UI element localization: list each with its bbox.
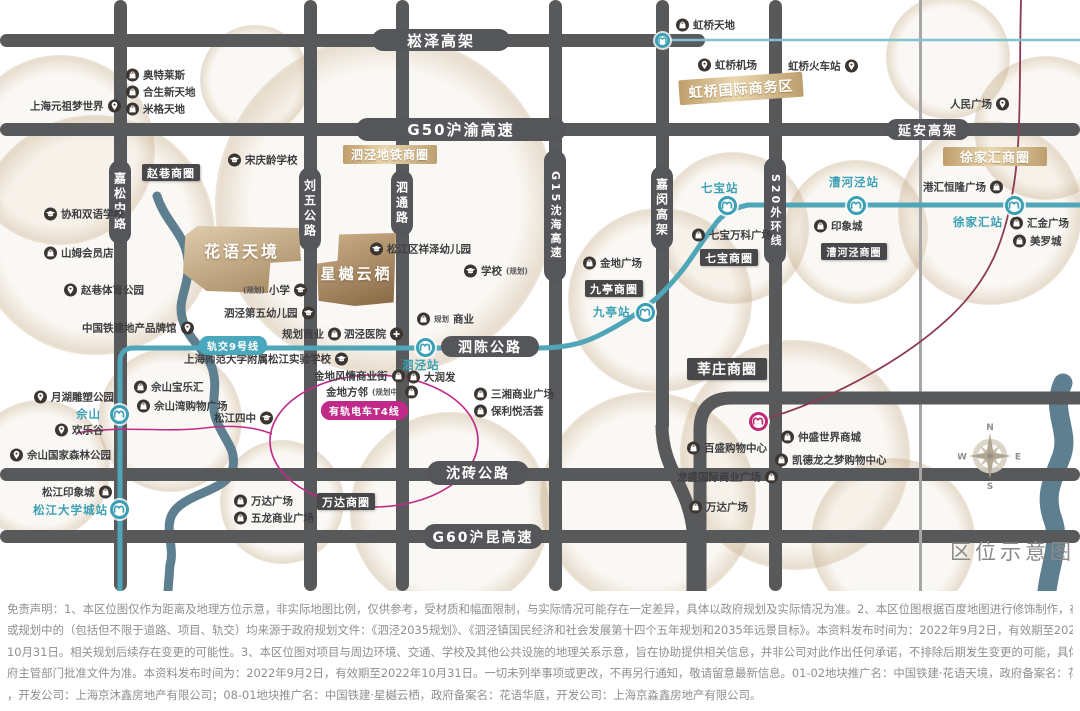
disclaimer-line: 10月31日。相关规划后续存在变更的可能性。3、本区位图对项目与周边环境、交通、… xyxy=(7,642,1073,663)
poi-label: 泗泾医院 xyxy=(344,327,386,342)
poi-label: 规划商业 xyxy=(282,327,324,342)
poi-label: 三湘商业广场 xyxy=(491,387,554,402)
transit-line-label: 有轨电车T4线 xyxy=(321,401,408,420)
metro-station xyxy=(847,196,866,215)
road-label: 延安高架 xyxy=(886,119,970,140)
map-poi: 月湖雕塑公园 xyxy=(34,390,114,405)
compass-rose: N E S W xyxy=(958,422,1022,490)
pin-icon xyxy=(845,60,858,73)
district-badge: 莘庄商圈 xyxy=(687,358,767,380)
poi-label: 印象城 xyxy=(831,219,863,234)
pin-icon xyxy=(108,100,121,113)
poi-label: 赵巷体育公园 xyxy=(81,283,144,298)
poi-label: 百盛购物中心 xyxy=(704,441,767,456)
disclaimer-line: 免责声明：1、本区位图仅作为距离及地理方位示意，非实际地图比例，仅供参考，受材质… xyxy=(7,599,1073,620)
road-label: S20外环线 xyxy=(764,157,786,265)
mall-icon xyxy=(676,19,689,32)
station-label: 徐家汇站 xyxy=(953,214,1003,230)
poi-note: (规划) xyxy=(243,285,265,296)
school-icon xyxy=(335,353,348,366)
map-poi: 三湘商业广场 xyxy=(474,387,554,402)
pin-icon xyxy=(996,98,1009,111)
poi-label: 佘山湾购物广场 xyxy=(154,399,228,414)
mall-icon xyxy=(126,103,139,116)
poi-label: 虹桥机场 xyxy=(715,58,757,73)
poi-label: 虹桥火车站 xyxy=(788,59,841,74)
metro-station xyxy=(655,33,670,48)
map-poi: 泗泾医院 xyxy=(344,327,403,342)
mall-icon xyxy=(328,328,341,341)
poi-label: 凯德龙之梦购物中心 xyxy=(792,453,887,468)
school-icon xyxy=(302,307,315,320)
disclaimer-line: 府主管部门批准文件为准。本资料发布时间为：2022年9月2日，有效期至2022年… xyxy=(7,663,1073,684)
road-label: 崧泽高架 xyxy=(372,29,510,51)
school-icon xyxy=(294,284,307,297)
map-poi: 港汇恒隆广场 xyxy=(923,180,1003,195)
poi-label: 宋庆龄学校 xyxy=(245,153,298,168)
poi-label: 米格天地 xyxy=(143,102,185,117)
station-label: 泗泾站 xyxy=(402,357,440,373)
poi-label: 五龙商业广场 xyxy=(251,511,314,526)
road-label: 沈砖公路 xyxy=(427,461,529,485)
metro-station xyxy=(110,405,129,424)
map-poi: 金地广场 xyxy=(583,256,642,271)
district-badge: 赵巷商圈 xyxy=(142,164,200,181)
poi-label: 小学 xyxy=(269,283,290,298)
poi-label: 中国铁建地产品牌馆 xyxy=(82,321,177,336)
poi-label: 商业 xyxy=(453,312,474,327)
map-poi: 龙盛国际商业广场 xyxy=(677,470,778,485)
school-icon xyxy=(464,265,477,278)
mall-icon xyxy=(765,471,778,484)
poi-label: 虹桥天地 xyxy=(693,18,735,33)
poi-label: 万达广场 xyxy=(251,494,293,509)
poi-label: 仲盛世界商城 xyxy=(798,430,861,445)
map-poi: 山姆会员店 xyxy=(44,246,114,261)
mall-icon xyxy=(134,381,147,394)
mall-icon xyxy=(775,454,788,467)
station-label: 漕河泾站 xyxy=(829,174,879,190)
poi-label: 合生新天地 xyxy=(143,85,196,100)
poi-label: 龙盛国际商业广场 xyxy=(677,470,761,485)
mall-icon xyxy=(1013,235,1026,248)
pin-icon xyxy=(64,284,77,297)
metro-station xyxy=(110,500,129,519)
hosp-icon xyxy=(390,328,403,341)
map-poi: 人民广场 xyxy=(950,97,1009,112)
district-badge: 九亭商圈 xyxy=(585,280,643,297)
disclaimer-text: 免责声明：1、本区位图仅作为距离及地理方位示意，非实际地图比例，仅供参考，受材质… xyxy=(0,593,1080,706)
poi-label: 协和双语学校 xyxy=(61,207,124,222)
map-poi: 虹桥机场 xyxy=(698,58,757,73)
station-label: 九亭站 xyxy=(593,304,631,320)
road-label: G15沈海高速 xyxy=(544,150,566,282)
map-poi: 保利悦活荟 xyxy=(474,404,544,419)
pin-icon xyxy=(181,322,194,335)
compass-s: S xyxy=(987,482,993,490)
map-poi: 百盛购物中心 xyxy=(687,441,767,456)
map-poi: 中国铁建地产品牌馆 xyxy=(82,321,194,336)
map-poi: 规划商业 xyxy=(282,327,341,342)
map-poi: 万达广场 xyxy=(689,500,748,515)
mall-icon xyxy=(126,86,139,99)
mall-icon xyxy=(44,247,57,260)
poi-note: 规划 xyxy=(434,314,449,325)
metro-station xyxy=(749,412,768,431)
mall-icon xyxy=(417,313,430,326)
road-label: 嘉松中路 xyxy=(109,160,131,244)
poi-label: 美罗城 xyxy=(1030,234,1062,249)
road-label: 泗通路 xyxy=(391,170,413,236)
location-map-page: 崧泽高架G50沪渝高速延安高架泗陈公路沈砖公路G60沪昆高速嘉松中路刘五公路泗通… xyxy=(0,0,1080,711)
map-poi: 宋庆龄学校 xyxy=(228,153,298,168)
map-poi: 万达广场 xyxy=(234,494,293,509)
mall-icon xyxy=(126,69,139,82)
mall-icon xyxy=(990,181,1003,194)
mall-icon xyxy=(99,486,112,499)
poi-label: 佘山国家森林公园 xyxy=(27,448,111,463)
map-title: 区位示意图 xyxy=(950,536,1075,566)
district-badge: 泗泾地铁商圈 xyxy=(343,145,437,164)
map-poi: 七宝万科广场 xyxy=(692,228,772,243)
compass-n: N xyxy=(986,423,994,433)
map-poi: 汇金广场 xyxy=(1010,216,1069,231)
pin-icon xyxy=(55,424,68,437)
poi-label: 人民广场 xyxy=(950,97,992,112)
map-poi: 米格天地 xyxy=(126,102,185,117)
map-poi: 协和双语学校 xyxy=(44,207,124,222)
district-badge: 万达商圈 xyxy=(317,493,375,510)
disclaimer-line: ，开发公司：上海京沐鑫房地产有限公司；08-01地块推广名：中国铁建·星樾云栖，… xyxy=(7,685,1073,706)
tram-t4-west xyxy=(77,426,272,434)
mall-icon xyxy=(474,405,487,418)
road-label: G50沪渝高速 xyxy=(356,118,566,141)
map-poi: 佘山国家森林公园 xyxy=(10,448,111,463)
poi-label: 上海元祖梦世界 xyxy=(30,99,104,114)
district-badge: 七宝商圈 xyxy=(700,249,758,266)
district-badge: 徐家汇商圈 xyxy=(943,147,1047,166)
district-badge: 漕河泾商圈 xyxy=(821,243,887,260)
road-label: 刘五公路 xyxy=(299,167,321,251)
mall-icon xyxy=(781,431,794,444)
poi-label: 山姆会员店 xyxy=(61,246,114,261)
map-poi: 虹桥天地 xyxy=(676,18,735,33)
metro-station xyxy=(636,303,655,322)
map-poi: 五龙商业广场 xyxy=(234,511,314,526)
map-poi: 凯德龙之梦购物中心 xyxy=(775,453,887,468)
map-poi: (规划)小学 xyxy=(243,283,307,298)
poi-label: 金地方邻 xyxy=(326,385,368,400)
poi-note: (规划) xyxy=(506,266,528,277)
mall-icon xyxy=(692,229,705,242)
map-poi: 赵巷体育公园 xyxy=(64,283,144,298)
map-poi: 佘山宝乐汇 xyxy=(134,380,204,395)
poi-label: 月湖雕塑公园 xyxy=(51,390,114,405)
road-label: 泗陈公路 xyxy=(441,336,539,357)
mall-icon xyxy=(583,257,596,270)
map-poi: 印象城 xyxy=(814,219,863,234)
poi-label: 七宝万科广场 xyxy=(709,228,772,243)
poi-label: 欢乐谷 xyxy=(72,423,104,438)
poi-label: 佘山宝乐汇 xyxy=(151,380,204,395)
poi-note: (规划中) xyxy=(372,387,401,398)
map-poi: 金地风情商业街 xyxy=(314,369,405,384)
mall-icon xyxy=(234,512,247,525)
mall-icon xyxy=(814,220,827,233)
poi-label: 金地广场 xyxy=(600,256,642,271)
map-poi: 泗泾第五幼儿园 xyxy=(224,306,315,321)
station-label: 佘山 xyxy=(76,406,101,422)
map-poi: 虹桥火车站 xyxy=(788,59,858,74)
metro-station xyxy=(416,338,435,357)
pin-icon xyxy=(698,59,711,72)
mall-icon xyxy=(689,501,702,514)
transit-line-label: 轨交9号线 xyxy=(199,336,267,355)
map-poi: 学校(规划) xyxy=(464,264,528,279)
metro-station xyxy=(718,196,737,215)
poi-label: 金地风情商业街 xyxy=(314,369,388,384)
map-poi: 佘山湾购物广场 xyxy=(137,399,228,414)
school-icon xyxy=(44,208,57,221)
station-label: 七宝站 xyxy=(701,180,739,196)
school-icon xyxy=(370,243,383,256)
map-poi: 仲盛世界商城 xyxy=(781,430,861,445)
poi-label: 奥特莱斯 xyxy=(143,68,185,83)
map-poi: 欢乐谷 xyxy=(55,423,104,438)
mall-icon xyxy=(234,495,247,508)
map-poi: 金地方邻(规划中) xyxy=(326,385,418,400)
mall-icon xyxy=(405,386,418,399)
poi-label: 汇金广场 xyxy=(1027,216,1069,231)
compass-e: E xyxy=(1015,453,1021,463)
mall-icon xyxy=(687,442,700,455)
map-poi: 松江区祥泽幼儿园 xyxy=(370,242,471,257)
station-label: 松江大学城站 xyxy=(33,502,108,518)
disclaimer-line: 或规划中的（包括但不限于道路、项目、轨交）均来源于政府规划文件：《泗泾2035规… xyxy=(7,620,1073,641)
map-poi: 奥特莱斯 xyxy=(126,68,185,83)
compass-w: W xyxy=(958,453,967,463)
school-icon xyxy=(260,412,273,425)
map-poi: 合生新天地 xyxy=(126,85,196,100)
mall-icon xyxy=(137,400,150,413)
map-poi: 松江印象城 xyxy=(42,485,112,500)
metro-station xyxy=(1005,196,1024,215)
school-icon xyxy=(228,154,241,167)
poi-label: 万达广场 xyxy=(706,500,748,515)
map-poi: 规划商业 xyxy=(417,312,474,327)
road-label: 嘉闵高架 xyxy=(651,166,673,250)
map-poi: 上海元祖梦世界 xyxy=(30,99,121,114)
poi-label: 学校 xyxy=(481,264,502,279)
poi-label: 泗泾第五幼儿园 xyxy=(224,306,298,321)
mall-icon xyxy=(474,388,487,401)
pin-icon xyxy=(34,391,47,404)
mall-icon xyxy=(1010,217,1023,230)
poi-label: 港汇恒隆广场 xyxy=(923,180,986,195)
map-poi: 美罗城 xyxy=(1013,234,1062,249)
map-canvas: 崧泽高架G50沪渝高速延安高架泗陈公路沈砖公路G60沪昆高速嘉松中路刘五公路泗通… xyxy=(0,0,1080,591)
pin-icon xyxy=(10,449,23,462)
poi-label: 松江印象城 xyxy=(42,485,95,500)
poi-label: 保利悦活荟 xyxy=(491,404,544,419)
road-label: G60沪昆高速 xyxy=(423,524,543,549)
poi-label: 松江区祥泽幼儿园 xyxy=(387,242,471,257)
